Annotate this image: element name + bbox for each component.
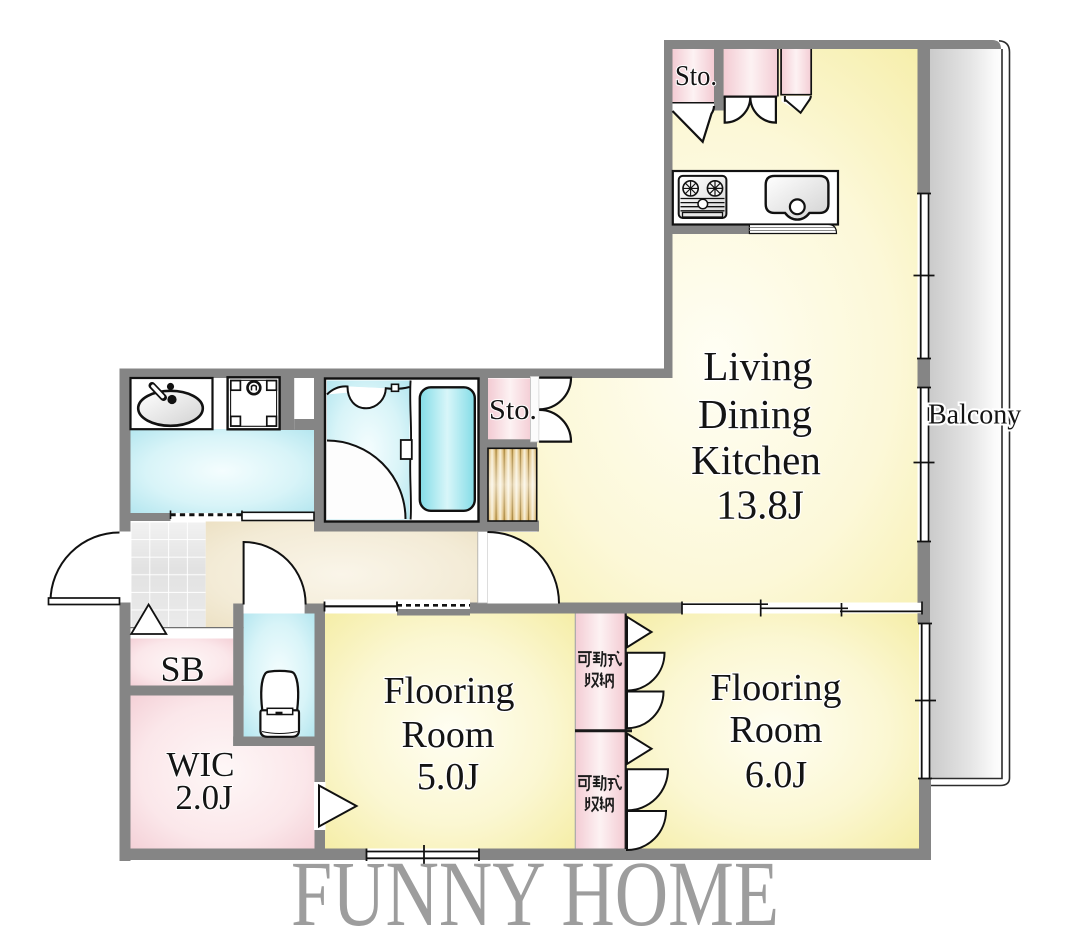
svg-text:13.8J: 13.8J (716, 482, 804, 528)
svg-text:Room: Room (730, 709, 823, 751)
svg-text:Balcony: Balcony (928, 400, 1021, 431)
svg-text:Flooring: Flooring (711, 667, 842, 709)
svg-text:2.0J: 2.0J (175, 778, 232, 817)
svg-text:Sto.: Sto. (675, 61, 717, 92)
svg-text:5.0J: 5.0J (417, 756, 479, 798)
svg-text:SB: SB (160, 649, 204, 689)
svg-text:Flooring: Flooring (384, 670, 515, 712)
svg-text:Room: Room (402, 714, 495, 756)
svg-text:Dining: Dining (698, 391, 812, 437)
svg-text:Sto.: Sto. (489, 395, 537, 426)
svg-text:6.0J: 6.0J (745, 754, 807, 796)
svg-text:FUNNY HOME: FUNNY HOME (291, 843, 779, 936)
svg-text:Kitchen: Kitchen (691, 437, 821, 483)
svg-text:Living: Living (703, 343, 812, 389)
